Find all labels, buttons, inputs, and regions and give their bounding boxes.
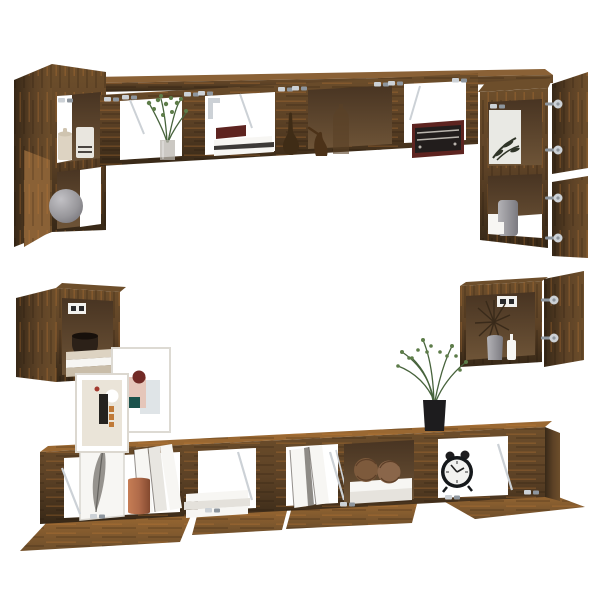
cabinet-doors-open [545,72,588,258]
flat-book-stack [184,490,250,518]
vintage-radio [412,120,464,158]
product-photo [0,0,600,600]
wall-mount-plate [68,303,86,314]
book-stack [66,349,112,377]
open-door-with-hinges [541,271,584,367]
sphere-vase [49,189,83,223]
mid-left-wall-box [16,283,126,382]
furniture-scene [0,0,600,600]
top-right-cabinet [478,72,588,258]
wall-mount-plate [497,296,517,307]
mid-right-wall-box [460,271,584,367]
top-wall-unit [14,64,588,258]
top-left-cabinet [14,64,106,247]
black-vase-with-green-branches [396,338,468,431]
storage-jars [58,127,94,160]
copper-vase [128,478,150,515]
botanical-print [489,110,521,164]
stand-side-panel [545,427,560,501]
framed-abstract-print-small [76,374,128,452]
gray-vase [487,335,503,360]
